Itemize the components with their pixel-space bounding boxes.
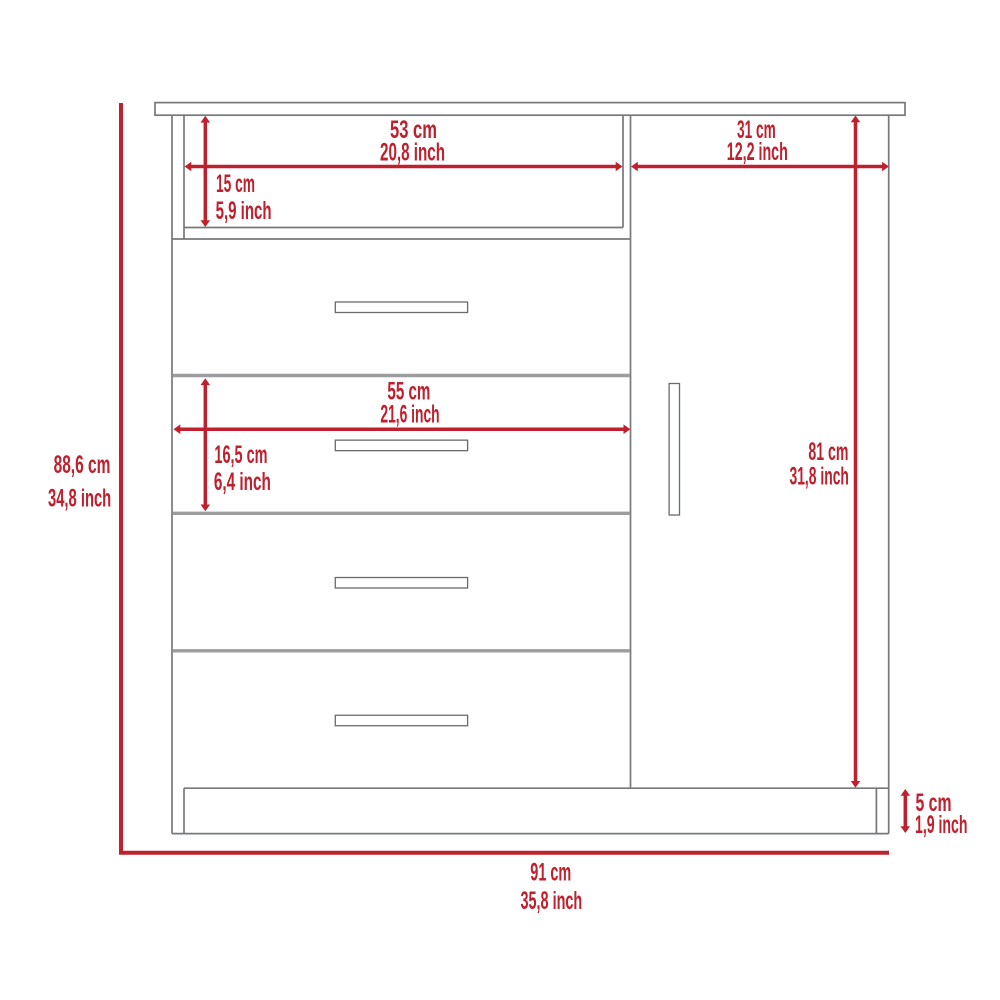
svg-text:12,2 inch: 12,2 inch: [727, 138, 788, 166]
svg-text:15 cm: 15 cm: [216, 170, 255, 198]
svg-text:16,5 cm: 16,5 cm: [214, 441, 267, 469]
svg-text:91 cm: 91 cm: [530, 859, 571, 887]
svg-text:6,4 inch: 6,4 inch: [214, 468, 271, 496]
svg-text:5,9 inch: 5,9 inch: [216, 197, 272, 225]
svg-text:1,9 inch: 1,9 inch: [915, 811, 968, 839]
svg-text:35,8 inch: 35,8 inch: [521, 887, 583, 915]
svg-text:34,8 inch: 34,8 inch: [48, 484, 111, 512]
svg-text:31,8 inch: 31,8 inch: [790, 463, 849, 491]
svg-text:88,6 cm: 88,6 cm: [54, 451, 111, 479]
svg-text:21,6 inch: 21,6 inch: [380, 401, 439, 429]
svg-text:20,8 inch: 20,8 inch: [380, 139, 445, 167]
